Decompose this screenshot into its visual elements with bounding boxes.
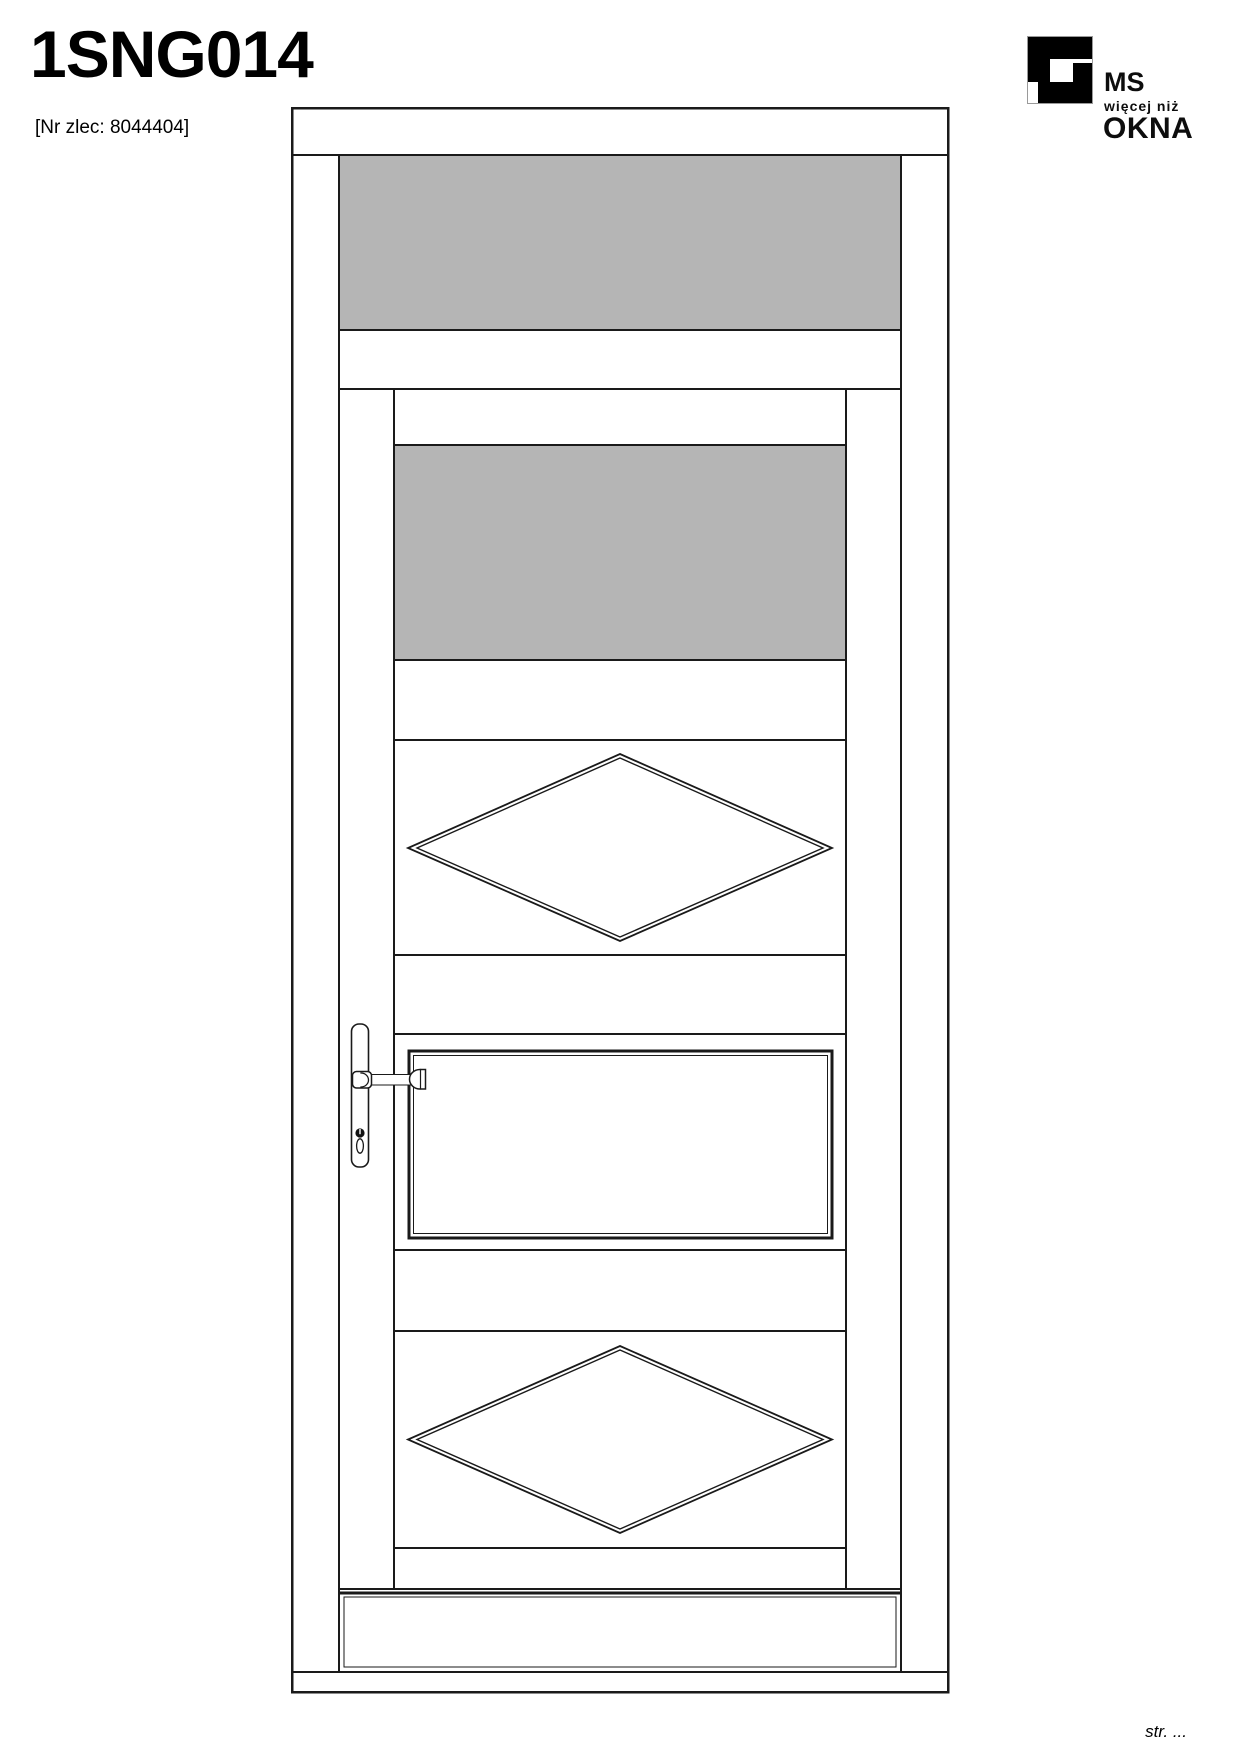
page-number-label: str. ... <box>1145 1722 1187 1742</box>
transom-glass <box>339 155 901 330</box>
diamond-panel-bottom <box>408 1346 832 1533</box>
diamond-top-outer <box>408 754 832 941</box>
door-handle <box>352 1024 426 1167</box>
keyhole-slit <box>359 1129 360 1134</box>
drawing-page: { "header": { "title": "1SNG014", "order… <box>0 0 1240 1755</box>
diamond-bottom-outer <box>408 1346 832 1533</box>
threshold-inner <box>344 1597 896 1667</box>
leaf-glass <box>394 445 846 660</box>
handle-lever-endcap <box>410 1070 426 1090</box>
rect-panel-inner <box>414 1056 828 1234</box>
rect-panel-outer <box>409 1051 832 1238</box>
door-frame-outline <box>292 108 948 1692</box>
threshold-outer <box>339 1589 901 1672</box>
diamond-bottom-inner <box>417 1350 823 1529</box>
threshold <box>339 1589 901 1672</box>
diamond-top-inner <box>417 758 823 937</box>
diamond-panel-top <box>408 754 832 941</box>
door-technical-drawing <box>0 0 1240 1755</box>
raised-rect-panel <box>409 1051 832 1238</box>
keyhole-slot <box>357 1139 364 1153</box>
